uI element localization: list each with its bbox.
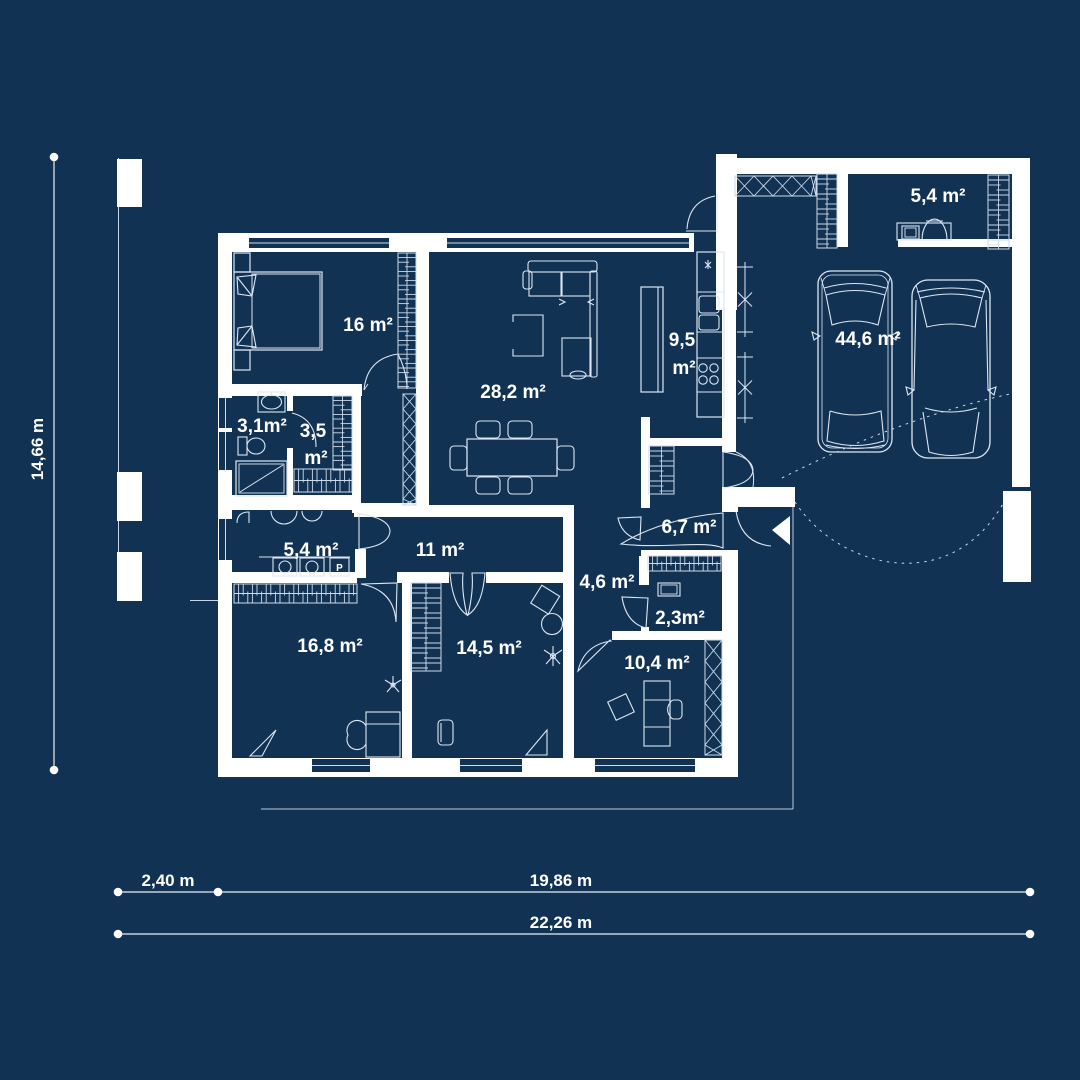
svg-text:22,26 m: 22,26 m (530, 913, 592, 932)
svg-text:44,6 m²: 44,6 m² (835, 329, 900, 350)
svg-text:19,86 m: 19,86 m (530, 871, 592, 890)
svg-text:10,4 m²: 10,4 m² (624, 653, 689, 674)
svg-text:3,5: 3,5 (300, 421, 327, 442)
svg-text:9,5: 9,5 (669, 330, 696, 351)
svg-text:28,2 m²: 28,2 m² (480, 382, 545, 403)
svg-text:11 m²: 11 m² (416, 540, 465, 561)
svg-text:2,40 m: 2,40 m (142, 871, 195, 890)
svg-text:3,1m²: 3,1m² (237, 416, 287, 437)
svg-text:6,7 m²: 6,7 m² (662, 517, 717, 538)
svg-text:14,5 m²: 14,5 m² (456, 638, 521, 659)
svg-text:P: P (336, 563, 343, 574)
svg-text:5,4 m²: 5,4 m² (284, 540, 339, 561)
svg-text:16,8 m²: 16,8 m² (297, 636, 362, 657)
svg-text:4,6 m²: 4,6 m² (580, 572, 635, 593)
svg-text:16 m²: 16 m² (343, 315, 393, 336)
svg-text:5,4 m²: 5,4 m² (911, 186, 966, 207)
svg-text:2,3m²: 2,3m² (655, 608, 705, 629)
svg-text:m²: m² (672, 358, 695, 379)
svg-text:m²: m² (304, 448, 327, 469)
svg-text:14,66 m: 14,66 m (28, 418, 47, 480)
